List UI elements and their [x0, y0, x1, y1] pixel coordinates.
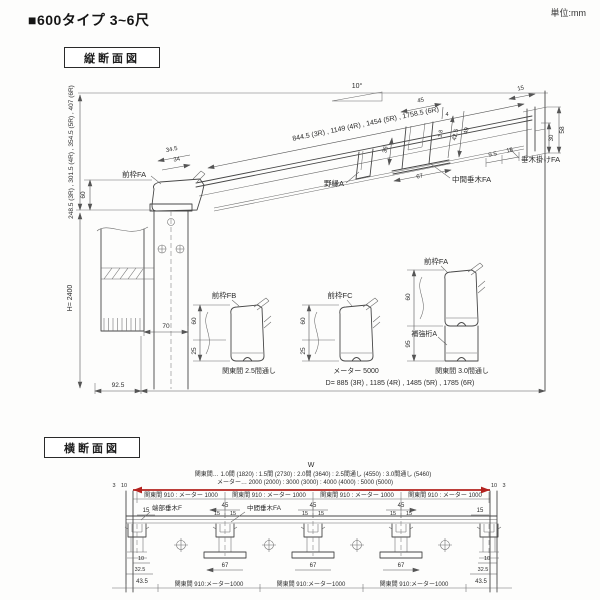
cs-dim-15-right-end: 15	[477, 508, 484, 514]
cs-dim-67-1: 67	[222, 563, 229, 569]
cs-edge-right-10: 10	[491, 483, 497, 489]
dim-front-height: 248.5 (3R) , 301.5 (4R) , 354.5 (5R) , 4…	[68, 85, 75, 219]
cs-edge-left-3: 3	[112, 483, 115, 489]
cs-dim-10-left: 10	[138, 556, 144, 562]
wall-bracket-detail	[523, 107, 547, 157]
dim-rafter-425: 42.5	[452, 128, 460, 141]
caption-fa-span: 関東間 3.0間通し	[435, 366, 489, 375]
cs-edge-right-3: 3	[502, 483, 505, 489]
cs-dim-15-1b: 15	[230, 511, 236, 517]
cs-dim-15-2b: 15	[318, 511, 324, 517]
dim-post-height: H= 2400	[67, 285, 74, 312]
slope-value: 10°	[352, 82, 363, 90]
cs-span-bottom-3: 関東間 910:メーター1000	[380, 580, 449, 588]
dim-depth: D= 885 (3R) , 1185 (4R) , 1485 (5R) , 17…	[326, 380, 475, 387]
dim-bracket-15: 15	[517, 85, 525, 92]
label-mid-rafter-fa: 中間垂木FA	[452, 174, 491, 184]
label-front-frame-fa2: 前枠FA	[424, 256, 448, 266]
cs-span-bottom-2: 関東間 910:メーター1000	[277, 580, 346, 588]
cs-dim-67-2: 67	[310, 563, 317, 569]
cs-dim-10-right: 10	[484, 556, 490, 562]
label-reinforce-beam-a: 補強桁A	[411, 329, 437, 338]
cs-dim-435-right: 43.5	[475, 579, 487, 585]
front-frame-fa-profile	[420, 263, 485, 361]
cs-dim-45-3: 45	[398, 503, 405, 509]
label-end-rafter-f: 端部垂木F	[152, 503, 182, 512]
cs-span-label-3: 関東間 910 : メーター 1000	[320, 491, 394, 499]
cs-w-label: W	[308, 462, 315, 469]
cs-dim-15-3b: 15	[406, 511, 412, 517]
dim-345: 34.5	[165, 146, 178, 154]
cs-span-bottom-1: 関東間 910:メーター1000	[175, 580, 244, 588]
label-cs-mid-rafter-fa: 中間垂木FA	[247, 503, 282, 512]
dim-fc-60: 60	[300, 317, 307, 325]
dim-offset-925: 92.5	[112, 382, 125, 389]
dim-bracket-95: 9.5	[488, 151, 498, 159]
label-nobuchi-a: 野縁A	[324, 178, 344, 188]
dim-rafter-base-67: 67	[416, 173, 424, 180]
label-front-frame-fa: 前枠FA	[122, 169, 146, 179]
dim-fb-60: 60	[191, 317, 198, 325]
label-front-frame-fb: 前枠FB	[212, 290, 237, 300]
cs-dim-45-2: 45	[310, 503, 317, 509]
dim-fc-25: 25	[300, 347, 307, 355]
vs-dimension-lines	[76, 94, 561, 394]
cs-width-spec-meter: メーター… 2000 (2000) : 3000 (3000) : 4000 (…	[217, 478, 393, 486]
dim-roof-length: 844.5 (3R) , 1149 (4R) , 1454 (5R) , 175…	[292, 106, 440, 143]
cs-dim-15-1a: 15	[214, 511, 220, 517]
cs-dim-325-right: 32.5	[478, 567, 489, 573]
cs-span-label-1: 関東間 910 : メーター 1000	[144, 491, 218, 499]
cs-span-label-2: 関東間 910 : メーター 1000	[232, 491, 306, 499]
dim-bracket-30: 30	[549, 134, 555, 141]
cs-dim-15-2a: 15	[302, 511, 308, 517]
technical-drawing: 10° 248.5 (3R) , 3	[0, 0, 600, 600]
dim-panel-18: 1.8	[437, 129, 444, 138]
front-frame-fc-profile	[315, 298, 380, 361]
cs-span-label-4: 関東間 910 : メーター 1000	[408, 491, 482, 499]
cs-dim-325-left: 32.5	[135, 567, 146, 573]
cs-dim-67-3: 67	[398, 563, 405, 569]
dim-fa-95: 95	[405, 340, 412, 348]
mid-rafter-detail	[392, 122, 450, 174]
front-post	[150, 204, 192, 389]
label-rafter-bracket-fa: 垂木掛けFA	[521, 154, 560, 164]
cs-width-spec-kanto: 関東間… 1.0間 (1820) : 1.5間 (2730) : 2.0間 (3…	[195, 470, 431, 478]
wall-section	[97, 227, 154, 331]
cs-edge-left-10: 10	[121, 483, 127, 489]
slope-indicator	[332, 92, 382, 101]
dim-rafter-4: 4	[445, 112, 448, 118]
dim-rafter-49: 49	[463, 126, 470, 134]
front-frame-fa-detail	[152, 171, 205, 211]
caption-fb-span: 関東間 2.5間通し	[222, 366, 276, 375]
dim-fa-60: 60	[405, 293, 412, 301]
dim-34: 34	[173, 156, 181, 163]
label-front-frame-fc: 前枠FC	[328, 290, 354, 300]
cs-dim-45-1: 45	[222, 503, 229, 509]
dim-post-70: 70	[162, 323, 170, 330]
front-frame-fb-profile	[206, 298, 271, 361]
cs-dim-15-3a: 15	[390, 511, 396, 517]
dim-front-frame-60: 60	[80, 191, 87, 199]
catalog-page: ■600タイプ 3~6尺 単位:mm 縦断面図 横断面図	[0, 0, 600, 600]
dim-fb-25: 25	[191, 347, 198, 355]
roof-beam	[196, 116, 532, 211]
caption-fc-span: メーター 5000	[333, 366, 379, 375]
dim-rafter-45: 45	[417, 97, 425, 104]
cs-dim-435-left: 43.5	[136, 579, 148, 585]
dim-nobuchi-36: 36	[382, 145, 389, 153]
dim-bracket-58: 58	[559, 126, 566, 134]
